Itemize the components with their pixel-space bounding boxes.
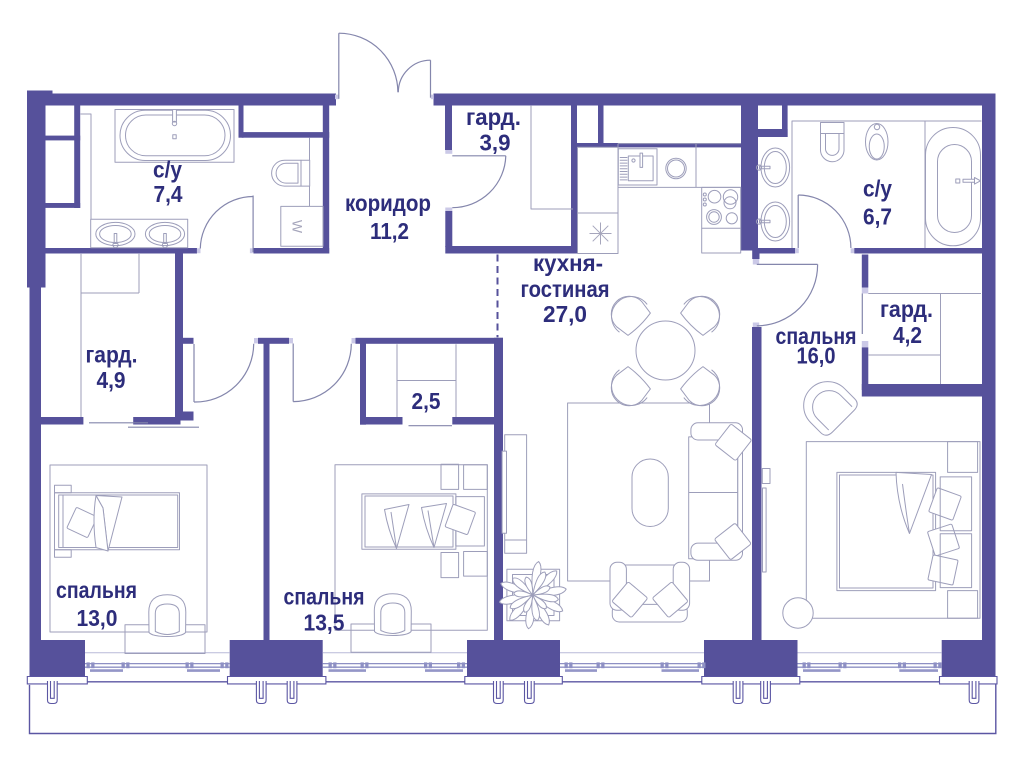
svg-text:коридор: коридор	[345, 190, 431, 216]
svg-text:гостиная: гостиная	[521, 276, 610, 302]
svg-text:спальня: спальня	[284, 584, 365, 610]
svg-text:13,0: 13,0	[77, 605, 118, 631]
svg-text:кухня-: кухня-	[533, 250, 603, 276]
svg-text:гард.: гард.	[880, 296, 933, 322]
svg-text:13,5: 13,5	[304, 610, 345, 636]
svg-text:гард.: гард.	[86, 342, 138, 368]
svg-text:7,4: 7,4	[154, 181, 183, 207]
svg-text:2,5: 2,5	[412, 388, 441, 414]
svg-text:6,7: 6,7	[863, 204, 892, 230]
svg-text:W: W	[289, 220, 305, 234]
svg-text:27,0: 27,0	[543, 301, 587, 327]
svg-text:4,9: 4,9	[97, 367, 126, 393]
svg-text:4,2: 4,2	[893, 322, 922, 348]
svg-text:спальня: спальня	[56, 577, 137, 603]
svg-text:с/у: с/у	[863, 176, 892, 202]
svg-text:с/у: с/у	[153, 157, 182, 183]
svg-text:гард.: гард.	[466, 104, 521, 130]
svg-text:11,2: 11,2	[370, 218, 409, 244]
svg-text:3,9: 3,9	[480, 130, 511, 156]
svg-text:16,0: 16,0	[797, 343, 836, 369]
